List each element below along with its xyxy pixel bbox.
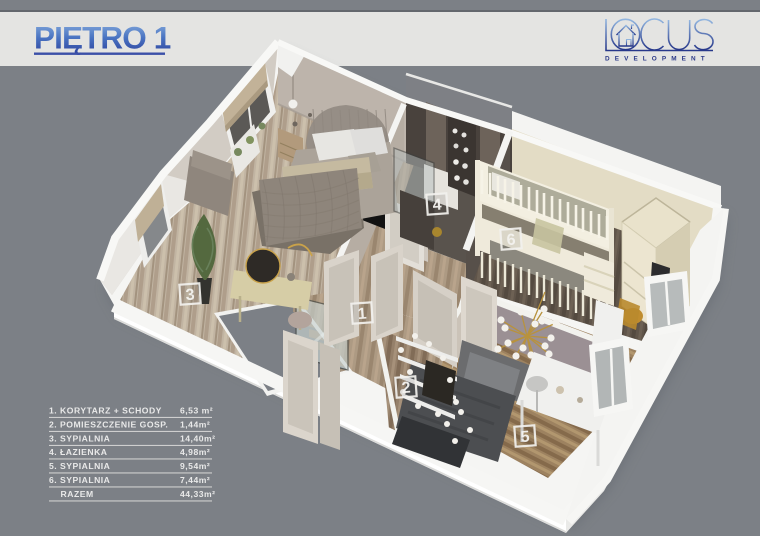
svg-text:2: 2 (401, 380, 411, 398)
svg-text:1: 1 (357, 306, 367, 324)
svg-text:3: 3 (185, 287, 195, 305)
svg-text:PIĘTRO 1: PIĘTRO 1 (34, 20, 171, 56)
svg-text:RAZEM: RAZEM (49, 489, 94, 499)
svg-text:14,40m²: 14,40m² (180, 434, 216, 444)
svg-text:1. KORYTARZ + SCHODY: 1. KORYTARZ + SCHODY (49, 406, 162, 416)
svg-text:4: 4 (432, 197, 442, 215)
svg-text:6. SYPIALNIA: 6. SYPIALNIA (49, 475, 110, 485)
svg-text:5. SYPIALNIA: 5. SYPIALNIA (49, 461, 110, 471)
svg-text:DEVELOPMENT: DEVELOPMENT (605, 56, 710, 63)
svg-text:4,98m²: 4,98m² (180, 447, 210, 457)
svg-text:2. POMIESZCZENIE GOSP.: 2. POMIESZCZENIE GOSP. (49, 420, 168, 430)
svg-text:3. SYPIALNIA: 3. SYPIALNIA (49, 434, 110, 444)
svg-text:5: 5 (520, 429, 530, 447)
svg-text:9,54m²: 9,54m² (180, 461, 210, 471)
svg-text:4. ŁAZIENKA: 4. ŁAZIENKA (49, 447, 108, 457)
svg-text:7,44m²: 7,44m² (180, 475, 210, 485)
svg-text:6,53 m²: 6,53 m² (180, 406, 213, 416)
svg-text:44,33m²: 44,33m² (180, 489, 216, 499)
svg-text:1,44m²: 1,44m² (180, 420, 210, 430)
svg-text:6: 6 (506, 232, 516, 250)
